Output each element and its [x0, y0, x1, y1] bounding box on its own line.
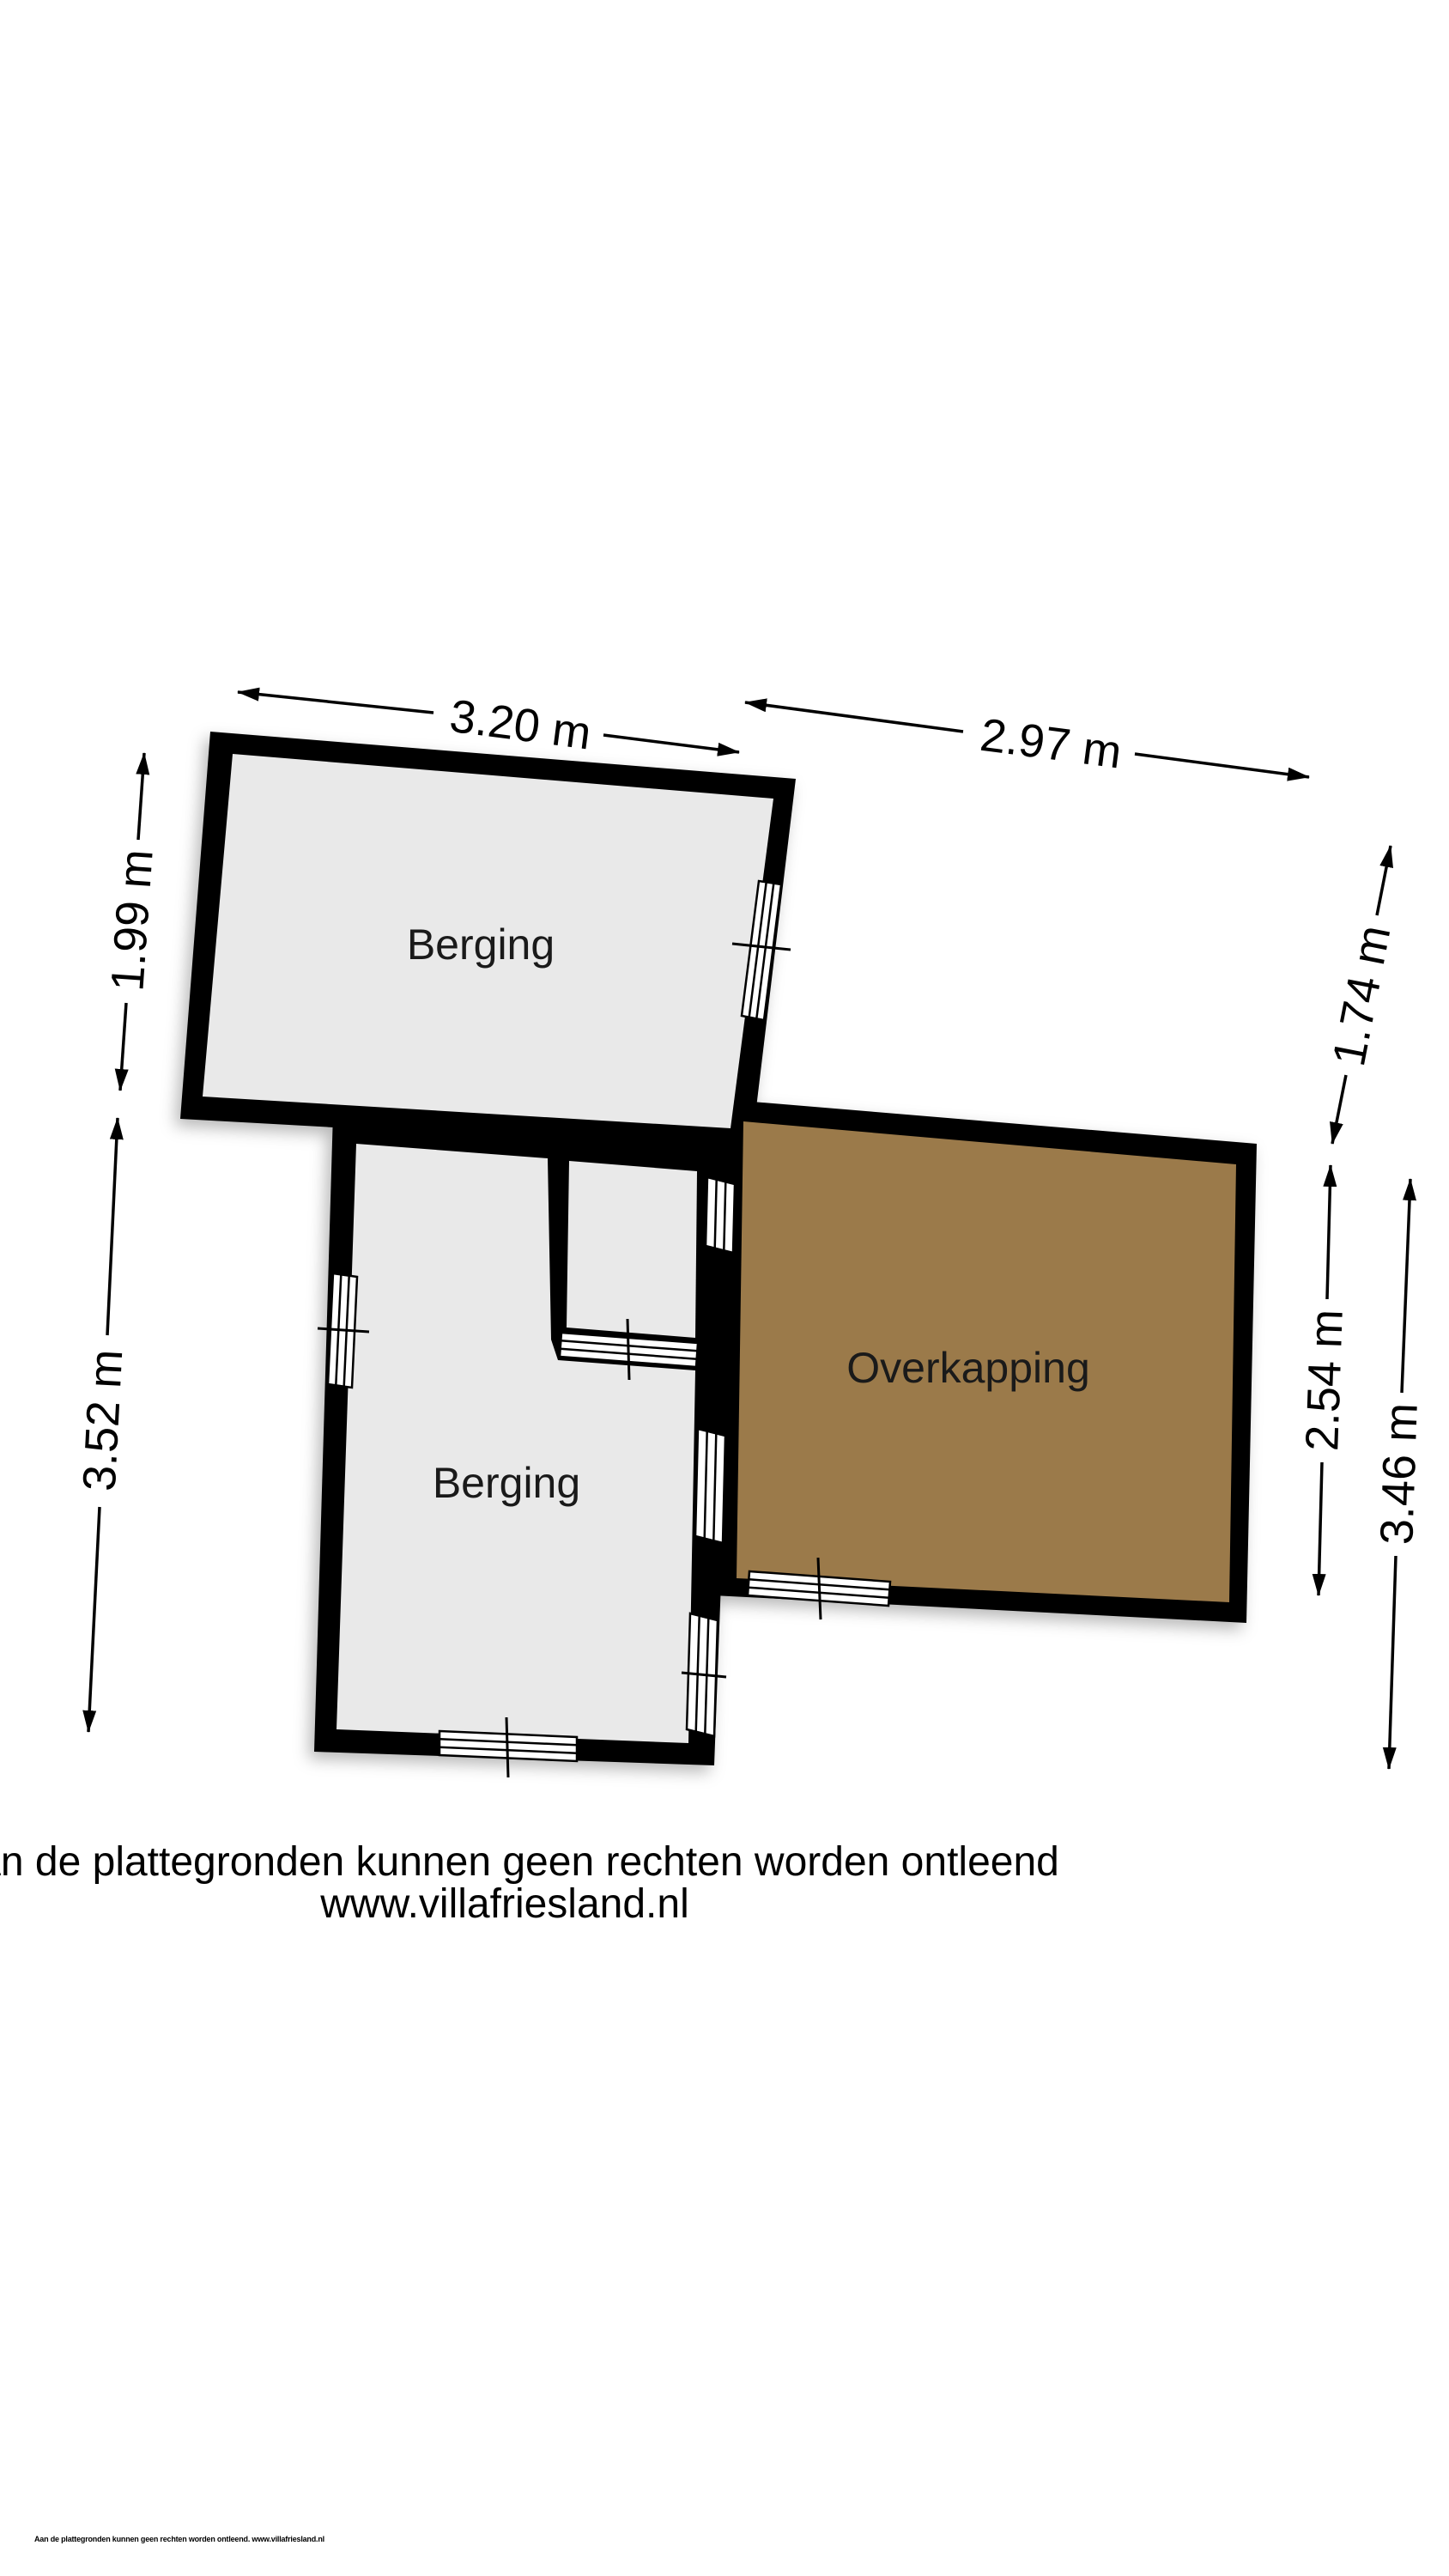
dimension-label-174: 1.74 m	[1323, 921, 1400, 1071]
dimension-left-lower: 3.52 m	[74, 1118, 133, 1732]
dimension-right-middle: 2.54 m	[1296, 1165, 1353, 1595]
floorplan-canvas: 3.20 m 2.97 m 1.99 m 3.52 m 1.74 m	[0, 0, 1449, 2576]
room-label-berging-top: Berging	[407, 920, 555, 969]
fine-print: Aan de plattegronden kunnen geen rechten…	[34, 2535, 324, 2543]
dimension-right-upper: 1.74 m	[1323, 846, 1400, 1144]
dimension-right-lower: 3.46 m	[1371, 1179, 1428, 1769]
window-dividing-wall-lower	[695, 1429, 725, 1543]
dimension-label-320: 3.20 m	[447, 690, 594, 760]
nook-floor	[567, 1161, 697, 1338]
window-dividing-wall-upper	[706, 1177, 735, 1253]
dimension-left-upper: 1.99 m	[101, 753, 162, 1091]
dimension-label-199: 1.99 m	[101, 848, 162, 993]
disclaimer-line2: www.villafriesland.nl	[319, 1881, 689, 1927]
room-label-berging-bottom: Berging	[433, 1459, 580, 1507]
dimension-label-297: 2.97 m	[978, 709, 1125, 779]
dimension-label-346: 3.46 m	[1371, 1402, 1428, 1546]
disclaimer-line1: Aan de plattegronden kunnen geen rechten…	[0, 1839, 1059, 1885]
dimension-label-254: 2.54 m	[1296, 1309, 1353, 1452]
floorplan-page: 3.20 m 2.97 m 1.99 m 3.52 m 1.74 m	[0, 0, 1449, 2576]
room-label-overkapping: Overkapping	[846, 1344, 1090, 1392]
dimension-label-352: 3.52 m	[74, 1348, 133, 1492]
dimension-top-right: 2.97 m	[745, 702, 1309, 779]
